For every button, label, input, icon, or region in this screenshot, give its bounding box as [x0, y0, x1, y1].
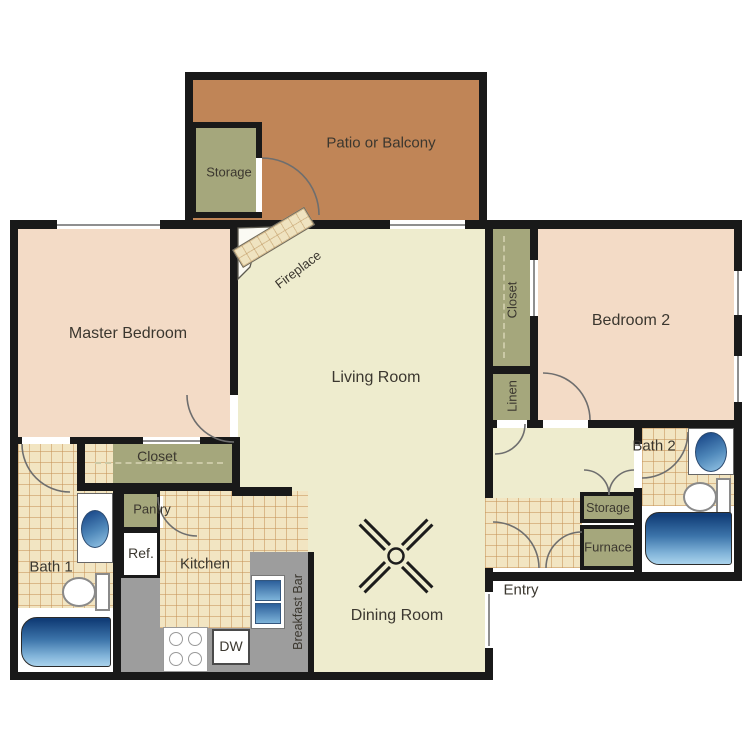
living-master-opening — [230, 395, 238, 437]
stove-burner-icon — [188, 632, 202, 646]
bath1-right-wall — [113, 491, 121, 672]
stove-burner-icon — [188, 652, 202, 666]
storage-patio-label: Storage — [206, 165, 252, 180]
storage-hall-label: Storage — [586, 501, 630, 515]
bottom-wall-left — [10, 672, 493, 680]
patio-slider-glass — [390, 224, 465, 226]
kitchen-sink-basin-icon — [255, 603, 281, 624]
living-right-wall — [485, 222, 493, 498]
living-room-label: Living Room — [332, 369, 421, 387]
bedroom2-label: Bedroom 2 — [592, 312, 670, 330]
bath1-tub-icon — [21, 617, 111, 667]
floor-plan: Fireplace — [0, 0, 750, 750]
stove-icon — [163, 627, 208, 672]
master-bedroom-label: Master Bedroom — [69, 325, 187, 343]
bath1-toilet-tank-icon — [95, 573, 110, 611]
patio-label: Patio or Balcony — [326, 135, 435, 152]
dishwasher-label: DW — [219, 638, 242, 654]
bath2-label: Bath 2 — [632, 438, 675, 455]
closet-bottom-wall — [77, 483, 240, 491]
storage-patio-door-opening — [256, 158, 262, 212]
stove-burner-icon — [169, 652, 183, 666]
left-exterior-wall — [10, 220, 18, 680]
kitchen-label: Kitchen — [180, 556, 230, 573]
master-window-glass — [57, 224, 160, 226]
kitchen-north-wall — [232, 487, 292, 496]
bath2-toilet-icon — [683, 482, 717, 512]
entry-label: Entry — [503, 582, 538, 599]
dining-room-floor — [313, 498, 485, 672]
patio-top-wall — [185, 72, 487, 80]
closet2-wall-lower — [530, 316, 538, 368]
breakfast-bar-label: Breakfast Bar — [291, 574, 305, 650]
bath2-toilet-tank-icon — [716, 478, 731, 516]
living-room-floor — [238, 229, 485, 437]
furnace-label: Furnace — [584, 540, 632, 555]
closet-master-label: Closet — [137, 448, 177, 464]
master-door-opening — [22, 437, 70, 444]
refrigerator-label: Ref. — [128, 545, 154, 561]
pantry-label: Pantry — [133, 502, 171, 517]
bottom-wall-right — [485, 572, 742, 581]
bedroom2-door-opening — [543, 420, 588, 428]
breakfast-bar-sink-counter — [251, 575, 285, 629]
bath1-sink-icon — [81, 510, 109, 548]
stove-burner-icon — [169, 632, 183, 646]
entry-wall-upper — [485, 568, 493, 592]
linen-label: Linen — [505, 380, 520, 412]
closet2-slider-line — [533, 260, 535, 316]
breakfast-bar-wall — [308, 552, 314, 672]
closet2-wall-upper — [530, 228, 538, 260]
dining-room-label: Dining Room — [351, 607, 443, 625]
bedroom2-window-2-glass — [737, 356, 739, 402]
kitchen-sink-basin-icon — [255, 580, 281, 601]
entry-wall-lower — [485, 648, 493, 680]
linen-right-wall — [530, 368, 538, 420]
patio-right-wall — [479, 72, 487, 228]
bath1-label: Bath 1 — [29, 559, 72, 576]
entry-door-leaf — [488, 594, 490, 646]
entry-hall-floor — [485, 498, 582, 568]
kitchen-counter-left — [121, 578, 160, 672]
back-hall-floor — [493, 428, 634, 498]
linen-bottom-stub-left — [489, 420, 497, 428]
bath1-toilet-icon — [62, 577, 96, 607]
closet-bedroom2-label: Closet — [505, 282, 520, 319]
bedroom2-window-1-glass — [737, 271, 739, 315]
bath2-sink-icon — [695, 432, 727, 472]
closet-master-slider-line — [143, 440, 200, 442]
bath2-tub-icon — [645, 512, 732, 565]
